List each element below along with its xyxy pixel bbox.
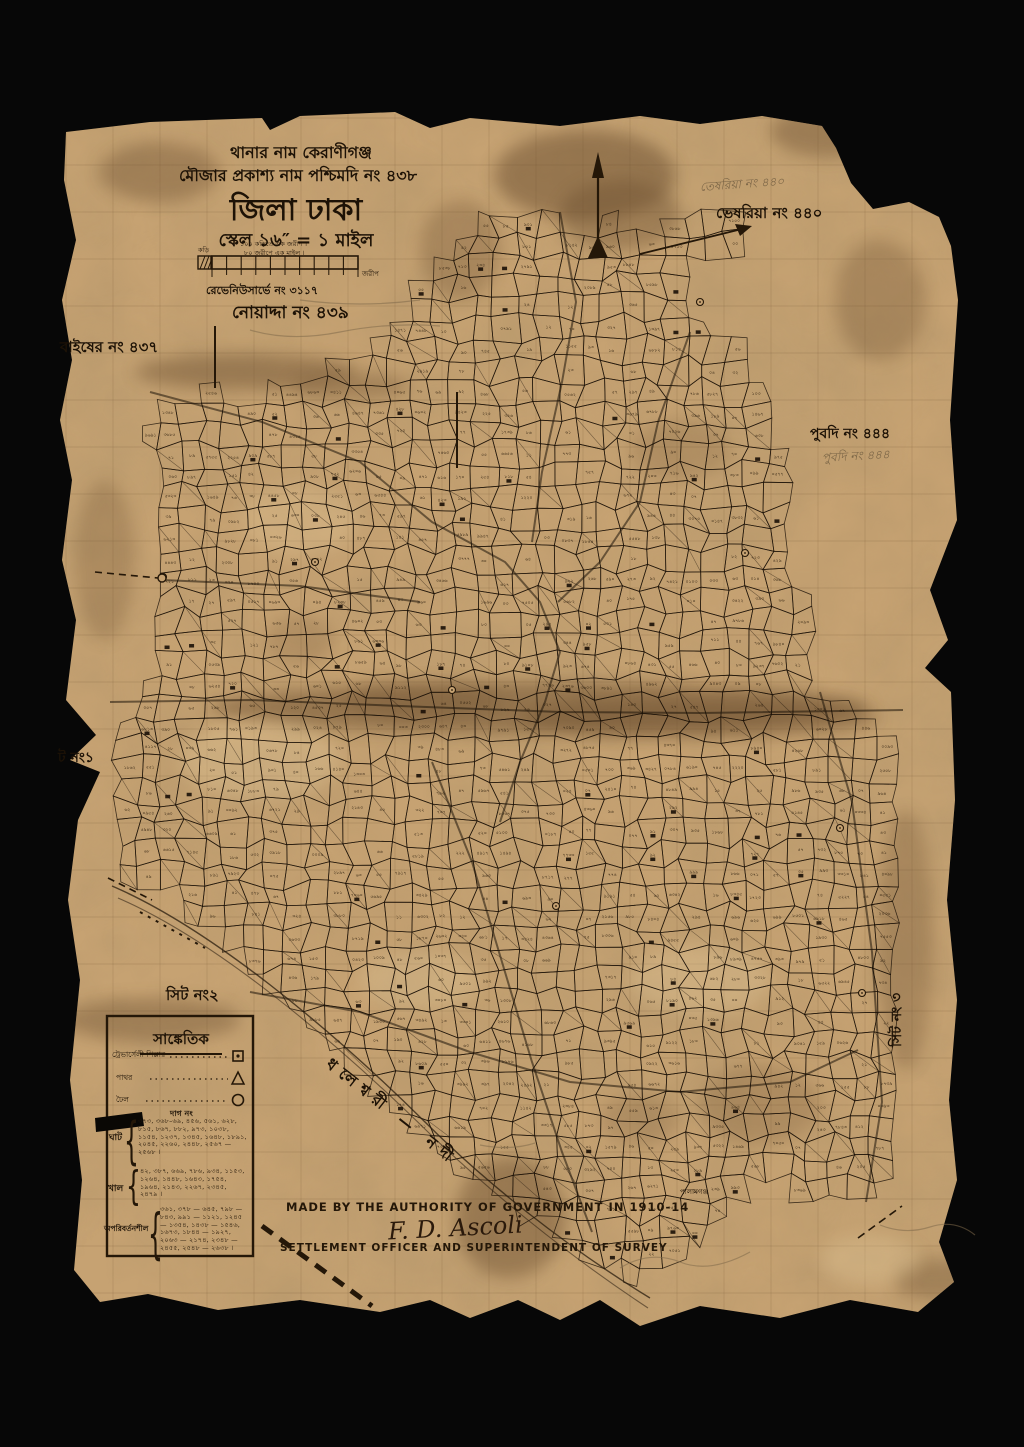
- svg-text:৬৯৪৫: ৬৯৪৫: [838, 980, 850, 985]
- scale-note-2: ৮০ জরীপে এক মাইল ।: [244, 248, 305, 259]
- svg-text:৪৯৬২: ৪৯৬২: [646, 682, 658, 687]
- svg-text:৭৯: ৭৯: [273, 788, 279, 793]
- svg-text:৭৫০৫: ৭৫০৫: [522, 601, 534, 606]
- svg-text:১৩৯৬: ১৩৯৬: [707, 1018, 720, 1023]
- svg-text:৬০: ৬০: [438, 978, 444, 983]
- svg-text:৫৬৮: ৫৬৮: [751, 1165, 761, 1170]
- svg-text:৫৮১: ৫৮১: [773, 769, 782, 774]
- svg-text:৮৫৩৮: ৮৫৩৮: [439, 267, 452, 272]
- svg-text:০৬৫: ০৬৫: [647, 1000, 656, 1005]
- svg-text:৭৪২১: ৭৪২১: [666, 580, 678, 585]
- svg-text:৫৮১৯: ৫৮১৯: [412, 854, 424, 859]
- scale-left-label: কড়ি: [198, 245, 209, 256]
- svg-text:২৭৩: ২৭৩: [627, 577, 637, 582]
- svg-text:৮০: ৮০: [736, 663, 742, 668]
- svg-text:৯৯৩: ৯৯৩: [731, 1186, 741, 1191]
- svg-text:৭৪: ৭৪: [817, 894, 823, 899]
- svg-text:৩৩৫: ৩৩৫: [375, 432, 384, 437]
- svg-text:৬৭২১: ৬৭২১: [269, 808, 281, 813]
- svg-text:৫৮৫: ৫৮৫: [564, 1124, 573, 1129]
- svg-text:৪৩৬৪: ৪৩৬৪: [542, 936, 554, 941]
- svg-text:১৪৯৪: ১৪৯৪: [500, 852, 512, 857]
- svg-text:৪৪৫৮: ৪৪৫৮: [268, 494, 281, 499]
- svg-text:৮৩৩৬: ৮৩৩৬: [602, 934, 615, 939]
- svg-text:৮৪: ৮৪: [606, 223, 612, 228]
- svg-text:২৯১৯: ২৯১৯: [417, 369, 429, 374]
- svg-text:২৯৭: ২৯৭: [290, 558, 299, 563]
- svg-text:২৩৭৬: ২৩৭৬: [562, 684, 575, 689]
- svg-text:৫৬৮২: ৫৬৮২: [563, 600, 575, 605]
- svg-text:৫৭: ৫৭: [294, 622, 300, 627]
- svg-text:৬৮১: ৬৮১: [479, 935, 488, 940]
- svg-text:৬৮১৩: ৬৮১৩: [141, 728, 154, 733]
- svg-text:৭২০: ৭২০: [335, 747, 344, 752]
- svg-text:১৭৫: ১৭৫: [626, 597, 635, 602]
- svg-text:১৮৪৪: ১৮৪৪: [582, 540, 594, 545]
- svg-text:৬২৫: ৬২৫: [750, 919, 759, 924]
- svg-text:৬২: ৬২: [124, 808, 130, 813]
- svg-text:১২: ১২: [460, 916, 466, 921]
- svg-text:০৭৮৪: ০৭৮৪: [664, 767, 676, 772]
- svg-text:২৬৪: ২৬৪: [755, 704, 764, 709]
- svg-text:৮৫৬৭: ৮৫৬৭: [498, 812, 510, 817]
- svg-text:৮৮১: ৮৮১: [334, 891, 343, 896]
- svg-text:৩৯৩: ৩৯৩: [775, 957, 785, 962]
- svg-text:৪৩৬: ৪৩৬: [288, 976, 298, 981]
- svg-text:০০: ০০: [732, 242, 738, 247]
- svg-text:১৫৫: ১৫৫: [841, 1086, 850, 1091]
- svg-text:৬৩৪৮: ৬৩৪৮: [227, 789, 240, 794]
- svg-text:০৩৫: ০৩৫: [689, 1017, 698, 1022]
- svg-text:৩০: ৩০: [481, 559, 487, 564]
- svg-text:৫৬৬: ৫৬৬: [815, 1083, 825, 1088]
- svg-text:৩২: ৩২: [461, 1061, 467, 1066]
- svg-text:৩৫: ৩৫: [798, 870, 804, 875]
- svg-text:৬২: ৬২: [546, 918, 552, 923]
- svg-text:২৫৫১: ২৫৫১: [331, 495, 343, 500]
- svg-text:৬৭৪: ৬৭৪: [287, 957, 296, 962]
- svg-text:৪৫: ৪৫: [379, 808, 385, 813]
- svg-text:৪০: ৪০: [609, 726, 615, 731]
- svg-text:২৮০: ২৮০: [731, 977, 740, 982]
- svg-text:৮৯৪০: ৮৯৪০: [751, 747, 763, 752]
- svg-text:৪৬৭৬: ৪৬৭৬: [499, 1039, 512, 1044]
- svg-text:১৫৩: ১৫৩: [309, 957, 319, 962]
- svg-text:৭২৭: ৭২৭: [750, 852, 759, 857]
- svg-text:৯৪৫৫: ৯৪৫৫: [667, 939, 679, 944]
- svg-text:০১৪: ০১৪: [751, 577, 760, 582]
- officer-line: SETTLEMENT OFFICER AND SUPERINTENDENT OF…: [280, 1242, 668, 1254]
- svg-text:৬১৫: ৬১৫: [332, 681, 341, 686]
- svg-text:০৭: ০৭: [691, 495, 697, 500]
- svg-text:০৯৮২: ০৯৮২: [228, 520, 240, 525]
- svg-text:৪২৮: ৪২৮: [396, 408, 406, 413]
- svg-text:৭০৫০: ৭০৫০: [772, 1142, 784, 1147]
- svg-text:৩৪২৭: ৩৪২৭: [645, 767, 657, 772]
- svg-text:৯০: ৯০: [547, 897, 553, 902]
- svg-text:৯২৩: ৯২৩: [563, 664, 573, 669]
- svg-text:৯২২: ৯২২: [565, 580, 574, 585]
- svg-text:৬৮২: ৬৮২: [710, 977, 719, 982]
- svg-text:৩০৭৫: ৩০৭৫: [688, 517, 700, 522]
- neighbor-label-baisher: বাইষের নং ৪৩৭: [60, 336, 158, 361]
- svg-text:৬৭: ৬৭: [273, 895, 279, 900]
- svg-text:৩৬৮৫: ৩৬৮৫: [164, 433, 176, 438]
- svg-text:৪৭৫৭: ৪৭৫৭: [751, 957, 763, 962]
- svg-text:০০: ০০: [732, 998, 738, 1003]
- svg-text:৯৮৬: ৯৮৬: [792, 789, 802, 794]
- svg-text:৬৪৭: ৬৪৭: [439, 724, 448, 729]
- svg-text:৫১: ৫১: [272, 392, 278, 397]
- svg-text:৭২০: ৭২০: [397, 429, 406, 434]
- scale-right-label: জরীপ: [362, 268, 379, 280]
- svg-text:৭০৬০: ৭০৬০: [351, 894, 363, 899]
- svg-text:৯৪: ৯৪: [711, 730, 717, 735]
- svg-text:৩৬৯: ৩৬৯: [627, 767, 636, 772]
- svg-text:৩৬৭৯: ৩৬৭৯: [626, 413, 638, 418]
- svg-text:৩৭৫: ৩৭৫: [269, 830, 278, 835]
- svg-text:৫১: ৫১: [231, 771, 237, 776]
- svg-text:৪৬২: ৪৬২: [688, 997, 697, 1002]
- svg-text:০৯৯: ০৯৯: [750, 472, 759, 477]
- svg-text:২৪৫: ২৪৫: [336, 515, 345, 520]
- svg-text:৫৩২২: ৫৩২২: [713, 1144, 725, 1149]
- svg-text:০৫৩৯: ০৫৩৯: [208, 663, 220, 668]
- svg-text:১০: ১০: [441, 330, 447, 335]
- svg-text:০০০৯: ০০০৯: [312, 853, 324, 858]
- svg-text:৯৭৮৬: ৯৭৮৬: [732, 619, 745, 624]
- svg-text:০৭৯১: ০৭৯১: [500, 327, 512, 332]
- svg-text:৫৫৪৮: ৫৫৪৮: [629, 537, 642, 542]
- svg-text:০৩২৬: ০৩২৬: [270, 536, 283, 541]
- svg-text:১৯: ১৯: [526, 348, 532, 353]
- svg-text:৫৪: ৫৪: [630, 893, 636, 898]
- scanned-map-page: ৫৫৮৫৯০১৮৪৩৮৬৮৭১৫০৫২৮৫১৮১৪২৯৩৯৬০৬৩১৭১৩০০৮…: [0, 0, 1024, 1447]
- svg-text:৭২০: ৭২০: [228, 682, 237, 687]
- svg-text:০৬৯৩: ০৬৯৩: [269, 601, 282, 606]
- svg-text:৯৮২৮: ৯৮২৮: [225, 539, 238, 544]
- svg-text:০৫: ০৫: [526, 623, 532, 628]
- svg-text:৭৩১৭: ৭৩১৭: [605, 976, 617, 981]
- svg-text:৬৩৩৬: ৬৩৩৬: [372, 639, 385, 644]
- svg-text:৯১: ৯১: [166, 663, 172, 668]
- svg-text:৩২৭২: ৩২৭২: [560, 748, 572, 753]
- svg-text:৭৫২: ৭৫২: [331, 473, 340, 478]
- svg-text:৬১: ৬১: [840, 809, 846, 814]
- svg-text:৮৫: ৮৫: [503, 224, 509, 229]
- svg-text:২৫০: ২৫০: [670, 1169, 679, 1174]
- svg-text:৩০৮০: ৩০৮০: [435, 998, 447, 1003]
- svg-text:৪১: ৪১: [881, 851, 887, 856]
- svg-text:১৪৭১: ১৪৭১: [394, 329, 406, 334]
- svg-text:৯১৯১: ৯১৯১: [604, 895, 616, 900]
- svg-text:১৭: ১৭: [189, 600, 195, 605]
- svg-text:০৩৯: ০৩৯: [186, 746, 195, 751]
- svg-text:৮৪: ৮৪: [294, 751, 300, 756]
- svg-text:৭৭: ৭৭: [627, 747, 633, 752]
- dag-numbers-khal: ৪২, ৩৮৭, ৬৬৯, ৭৮৬, ৯৩৪, ১১৫৩, ১২৬৪, ১৪৪৮…: [140, 1168, 246, 1199]
- svg-text:৬৫: ৬৫: [249, 704, 255, 709]
- svg-text:৩৯৬: ৩৯৬: [481, 1059, 491, 1064]
- svg-text:৪১২: ৪১২: [855, 1125, 864, 1130]
- svg-text:৪৯: ৪৯: [146, 875, 152, 880]
- svg-text:৮৭৩৯: ৮৭৩৯: [881, 1082, 893, 1087]
- svg-text:৮৭৩: ৮৭৩: [585, 1124, 595, 1129]
- svg-text:০৫৭: ০৫৭: [143, 706, 152, 711]
- svg-text:৯০৪১: ৯০৪১: [794, 1042, 806, 1047]
- svg-text:০২৪: ০২৪: [313, 726, 322, 731]
- svg-text:২৮৯৭: ২৮৯৭: [333, 871, 345, 876]
- svg-text:৭৪: ৭৪: [715, 1209, 721, 1214]
- svg-text:৭২৩: ৭২৩: [751, 556, 761, 561]
- svg-text:৭১১: ৭১১: [711, 638, 720, 643]
- svg-text:১৬৯৬: ১৬৯৬: [481, 600, 494, 605]
- svg-text:১৪৬৯: ১৪৬৯: [732, 1145, 744, 1150]
- svg-text:০৩৮: ০৩৮: [311, 514, 321, 519]
- svg-text:৪৮০০: ৪৮০০: [857, 956, 869, 961]
- svg-text:৯৪৯: ৯৪৯: [396, 578, 405, 583]
- svg-text:৫৫: ৫৫: [376, 873, 382, 878]
- svg-text:৮০: ৮০: [504, 662, 510, 667]
- svg-text:২৯৯: ২৯৯: [291, 728, 300, 733]
- svg-text:৬৪: ৬৪: [380, 661, 386, 666]
- svg-text:৯৮৪০: ৯৮৪০: [773, 642, 785, 647]
- svg-text:৬২৫৪: ৬২৫৪: [209, 684, 221, 689]
- svg-text:৯৩৭: ৯৩৭: [694, 1146, 703, 1151]
- svg-text:৯২: ৯২: [399, 1000, 405, 1005]
- svg-text:১৭৯: ১৭৯: [310, 976, 319, 981]
- svg-text:৭০২: ৭০২: [479, 1107, 488, 1112]
- svg-text:৭৩৩: ৭৩৩: [546, 812, 556, 817]
- svg-text:৬৩০: ৬৩০: [291, 514, 300, 519]
- svg-text:১৫৫: ১৫৫: [585, 852, 594, 857]
- svg-text:১৯৩০: ১৯৩০: [815, 936, 827, 941]
- svg-text:০৮৬৪: ০৮৬৪: [624, 661, 636, 666]
- svg-text:৮২: ৮২: [439, 914, 445, 919]
- svg-text:৩৬৮: ৩৬৮: [773, 578, 783, 583]
- svg-text:৭৭: ৭৭: [586, 828, 592, 833]
- svg-text:৫৯: ৫৯: [335, 368, 341, 373]
- svg-text:০৭: ০৭: [732, 416, 738, 421]
- svg-text:৯০: ৯০: [461, 351, 467, 356]
- svg-text:৭১: ৭১: [565, 1039, 571, 1044]
- svg-text:৭৮৭: ৭৮৭: [876, 1147, 885, 1152]
- svg-text:১২১: ১২১: [250, 644, 259, 649]
- svg-text:৭৮৭: ৭৮৭: [270, 645, 279, 650]
- svg-text:০৯২২: ০৯২২: [646, 1062, 658, 1067]
- svg-text:১৮০৫: ১৮০৫: [208, 727, 220, 732]
- svg-text:২৮৯: ২৮৯: [693, 1169, 702, 1174]
- svg-text:১০৩৭: ১০৩৭: [435, 955, 447, 960]
- svg-text:৬১: ৬১: [753, 516, 759, 521]
- svg-text:১৮৭: ১৮৭: [437, 663, 446, 668]
- revenue-survey-no: রেভেনিউসার্ভে নং ৩১১৭: [206, 282, 318, 301]
- svg-text:৯০১: ৯০১: [268, 769, 277, 774]
- svg-text:৪২৬৮: ৪২৬৮: [792, 749, 805, 754]
- svg-text:২২৫: ২২৫: [482, 412, 491, 417]
- svg-text:৪৭১: ৪৭১: [419, 475, 428, 480]
- svg-text:৬৪৭: ৬৪৭: [334, 1018, 343, 1023]
- svg-text:৬৬৫৬: ৬৬৫৬: [501, 452, 514, 457]
- svg-text:৩২৯২: ৩২৯২: [584, 1168, 596, 1173]
- svg-text:৬৩৪২: ৬৩৪২: [669, 893, 681, 898]
- svg-text:৮৫৯৮: ৮৫৯৮: [646, 283, 659, 288]
- svg-text:১৫৭৯: ১৫৭৯: [605, 1146, 617, 1151]
- svg-text:৭০৫১: ৭০৫১: [669, 1249, 681, 1254]
- svg-text:২০৫: ২০৫: [857, 1165, 866, 1170]
- svg-text:৫৪৩: ৫৪৩: [543, 1187, 553, 1192]
- svg-text:৩২২: ৩২২: [416, 809, 425, 814]
- svg-text:৮৩৭৬: ৮৩৭৬: [249, 960, 262, 965]
- svg-text:৪৯: ৪৯: [649, 389, 655, 394]
- svg-text:৩৪২৯: ৩৪২৯: [416, 894, 428, 899]
- svg-text:৩৯: ৩৯: [166, 515, 172, 520]
- svg-text:৯৯৪৭: ৯৯৪৭: [477, 535, 489, 540]
- svg-text:০৪১১: ০৪১১: [330, 390, 342, 395]
- svg-text:১৩৯৭: ১৩৯৭: [648, 327, 660, 332]
- svg-text:৪২৮: ৪২৮: [418, 1040, 428, 1045]
- svg-text:২০৪২: ২০৪২: [503, 1082, 515, 1087]
- svg-text:০১০৩: ০১০৩: [686, 580, 699, 585]
- svg-text:২১৪৩: ২১৪৩: [351, 806, 364, 811]
- svg-text:৯৩৩৫: ৯৩৩৫: [712, 1125, 724, 1130]
- svg-text:২৫৪৬: ২৫৪৬: [205, 392, 218, 397]
- svg-text:৭৪৪৮: ৭৪৪৮: [415, 329, 428, 334]
- brace-glyph: {: [124, 1113, 139, 1172]
- svg-text:৪০৯৮: ৪০৯৮: [881, 873, 894, 878]
- svg-text:৩৩১৭: ৩৩১৭: [541, 1124, 553, 1129]
- svg-text:৪২৯: ৪২৯: [773, 559, 782, 564]
- svg-text:০৯৫৪: ০৯৫৪: [142, 811, 154, 816]
- svg-text:৪৭: ৪৭: [711, 620, 717, 625]
- svg-text:৬১৫: ৬১৫: [646, 1044, 655, 1049]
- svg-text:৫৫৯: ৫৫৯: [629, 1109, 638, 1114]
- svg-text:৪১১৭: ৪১১৭: [145, 745, 157, 750]
- svg-text:৪৩৭০: ৪৩৭০: [663, 744, 675, 749]
- svg-text:৩৪২৪: ৩৪২৪: [521, 937, 533, 942]
- svg-text:৬১৬: ৬১৬: [437, 476, 447, 481]
- svg-text:২৬৭: ২৬৭: [628, 1186, 637, 1191]
- svg-text:৮৩৬৯: ৮৩৬৯: [794, 1188, 806, 1193]
- svg-text:৬৪: ৬৪: [525, 557, 531, 562]
- svg-text:৫৫: ৫৫: [418, 288, 424, 293]
- svg-text:১৩৮: ১৩৮: [651, 536, 661, 541]
- svg-text:৩০৭: ৩০৭: [670, 828, 679, 833]
- neighbor-label-tegharia: ভেষরিয়া নং ৪৪০: [716, 202, 822, 227]
- svg-text:২০৩: ২০৩: [817, 1106, 827, 1111]
- svg-text:২৪১০: ২৪১০: [605, 787, 617, 792]
- svg-text:২৩৯: ২৩৯: [711, 1188, 720, 1193]
- svg-text:৯০১: ৯০১: [524, 223, 533, 228]
- svg-text:২১: ২১: [795, 664, 801, 669]
- svg-text:৬৩০২: ৬৩০২: [417, 915, 429, 920]
- svg-text:৭৯১৭: ৭৯১৭: [395, 871, 407, 876]
- svg-text:২১৫৬: ২১৫৬: [602, 915, 615, 920]
- svg-text:১০৩: ১০৩: [752, 392, 762, 397]
- svg-text:৯৯৩: ৯৯৩: [819, 869, 829, 874]
- svg-text:৮৯১: ৮৯১: [210, 874, 219, 879]
- svg-text:৬৮৬৩: ৬৮৬৩: [307, 391, 320, 396]
- svg-text:২০: ২০: [209, 769, 215, 774]
- svg-text:৩৯৩: ৩৯৩: [755, 597, 765, 602]
- svg-text:৭৩৬১: ৭৩৬১: [373, 411, 385, 416]
- svg-text:৮১০: ৮১০: [207, 788, 216, 793]
- svg-text:৮১: ৮১: [754, 1042, 760, 1047]
- svg-text:৪৮৭: ৪৮৭: [357, 536, 366, 541]
- svg-text:৮৪১: ৮৪১: [252, 912, 261, 917]
- svg-text:৭৪৬০: ৭৪৬০: [438, 451, 450, 456]
- svg-text:০৭: ০৭: [795, 1146, 801, 1151]
- svg-text:৪০: ৪০: [339, 536, 345, 541]
- svg-text:৩৬১৬: ৩৬১৬: [668, 1061, 681, 1066]
- svg-text:৯৯৯: ৯৯৯: [689, 871, 698, 876]
- svg-text:৪১৪০: ৪১৪০: [333, 767, 345, 772]
- svg-text:১১: ১১: [526, 453, 532, 458]
- svg-text:৭৭৪: ৭৭৪: [608, 873, 617, 878]
- svg-text:০৯৪: ০৯৪: [313, 600, 322, 605]
- svg-text:২৯: ২৯: [294, 810, 300, 815]
- svg-text:৫৭৫৫: ৫৭৫৫: [205, 456, 217, 461]
- svg-text:৮৬১: ৮৬১: [354, 639, 363, 644]
- svg-text:৫৬৯৫: ৫৬৯৫: [370, 895, 382, 900]
- svg-text:৩৯০: ৩৯০: [161, 728, 170, 733]
- svg-text:৪৩১: ৪৩১: [648, 663, 657, 668]
- legend-row-label-pillar: ট্রেভার্সেলী পিল্লার: [112, 1050, 165, 1062]
- svg-text:৯৪২: ৯৪২: [774, 1085, 783, 1090]
- svg-text:৪৪৪৩: ৪৪৪৩: [164, 561, 177, 566]
- svg-text:৬৬৭২: ৬৬৭২: [648, 1083, 660, 1088]
- svg-text:৯৭৯: ৯৭৯: [796, 960, 805, 965]
- svg-text:৪৫৯: ৪৫৯: [586, 728, 595, 733]
- svg-text:৫০১: ৫০১: [603, 622, 612, 627]
- svg-text:৬৪৪: ৬৪৪: [354, 789, 363, 794]
- svg-text:২২২০: ২২২০: [732, 766, 744, 771]
- svg-text:৮৮৪৮: ৮৮৪৮: [623, 263, 636, 268]
- svg-text:১২: ১২: [795, 1083, 801, 1088]
- svg-text:৩৪৬৬: ৩৪৬৬: [436, 579, 449, 584]
- svg-text:৮৪: ৮৪: [670, 977, 676, 982]
- svg-text:৫৭: ৫৭: [612, 390, 618, 395]
- svg-text:৩৭: ৩৭: [735, 809, 741, 814]
- legend-row-label-stone: পাথর: [116, 1073, 132, 1085]
- svg-text:২৯২: ২৯২: [669, 806, 678, 811]
- dag-numbers-ghat: ৩৭৩, ৩৬৮–৬৯, ৪৫৬, ৫৬১, ৬২৮, ৮১৫, ৮৬৭, ৮৮…: [138, 1118, 248, 1157]
- svg-text:৭০০: ৭০০: [605, 768, 614, 773]
- svg-text:৯৩৫: ৯৩৫: [815, 790, 824, 795]
- svg-text:৮৯: ৮৯: [650, 955, 656, 960]
- svg-text:৬৭৭: ৬৭৭: [734, 1065, 743, 1070]
- svg-text:৭৮৪৩: ৭৮৪৩: [835, 1126, 848, 1131]
- svg-text:১২: ১২: [567, 305, 573, 310]
- svg-text:৭০২৬: ৭০২৬: [669, 430, 682, 435]
- svg-text:২৩০০: ২৩০০: [418, 725, 430, 730]
- svg-text:৬১: ৬১: [565, 431, 571, 436]
- svg-text:৭৭৩: ৭৭৩: [562, 452, 572, 457]
- svg-text:০৫১৭: ০৫১৭: [248, 600, 260, 605]
- svg-text:৫৫: ৫৫: [481, 453, 487, 458]
- svg-text:৬০: ৬০: [463, 1044, 469, 1049]
- svg-text:৬৭৮৮: ৬৭৮৮: [646, 410, 659, 415]
- svg-text:২৬১০: ২৬১০: [497, 1020, 509, 1025]
- svg-text:০৯: ০৯: [399, 477, 405, 482]
- svg-text:৯৩৯৫: ৯৩৯৫: [604, 1039, 616, 1044]
- svg-text:০০৯৩: ০০৯৩: [881, 745, 894, 750]
- svg-text:৯৬৪: ৯৬৪: [878, 792, 887, 797]
- svg-text:১১৪২: ১১৪২: [520, 1107, 532, 1112]
- svg-text:৭৪: ৭৪: [631, 785, 637, 790]
- svg-text:৫৮২৭: ৫৮২৭: [706, 392, 718, 397]
- svg-text:২৬৮: ২৬৮: [211, 706, 221, 711]
